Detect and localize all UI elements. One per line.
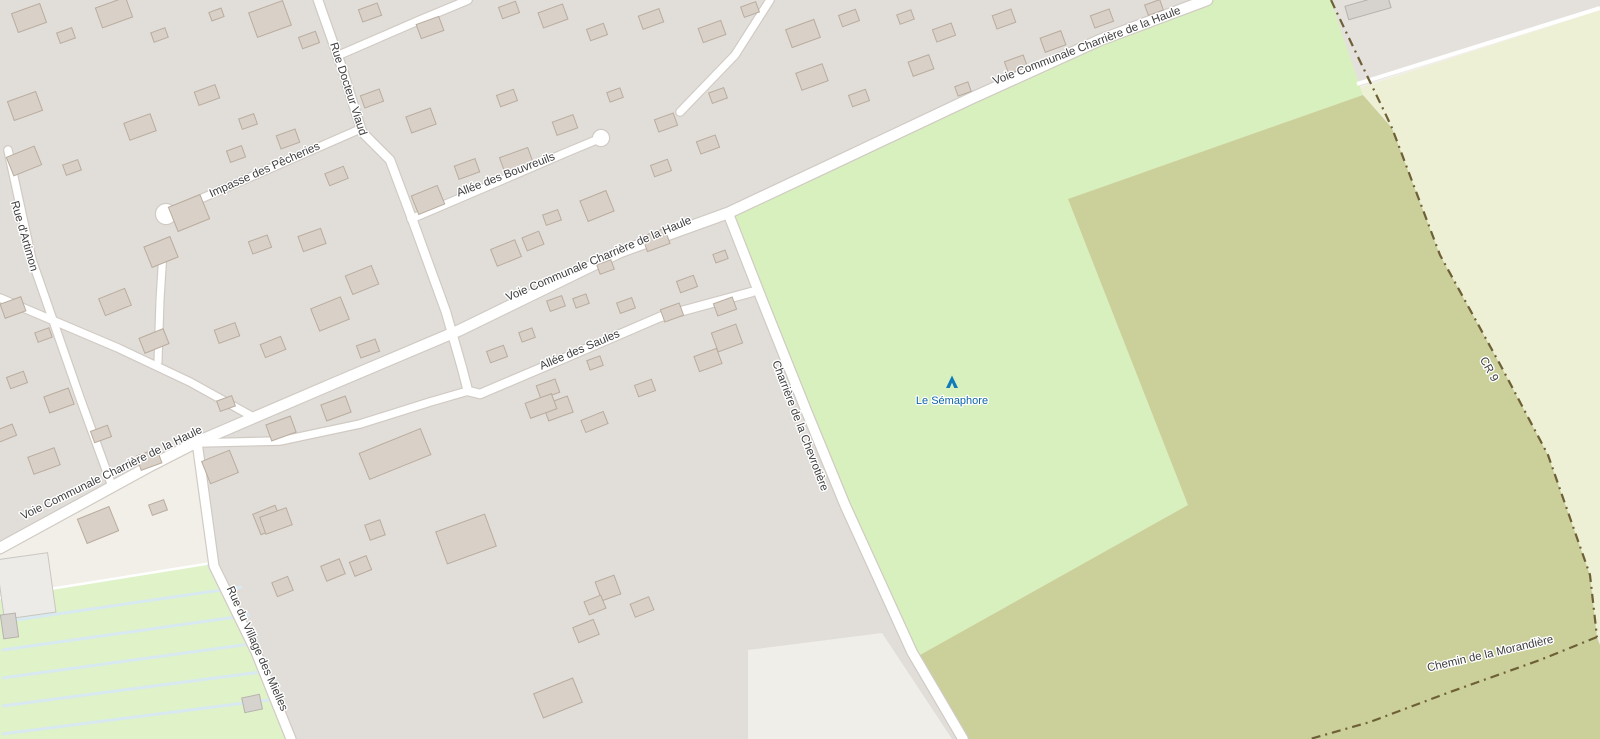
gray-building-campsite [242,694,263,712]
gray-building-small-left [0,613,18,639]
poi-label: Le Sémaphore [916,395,988,407]
white-building [0,553,56,620]
dead-end-circle [593,130,609,146]
map-canvas[interactable]: Le Sémaphore Rue Docteur ViaudImpasse de… [0,0,1600,739]
map-viewport[interactable]: Le Sémaphore Rue Docteur ViaudImpasse de… [0,0,1600,739]
